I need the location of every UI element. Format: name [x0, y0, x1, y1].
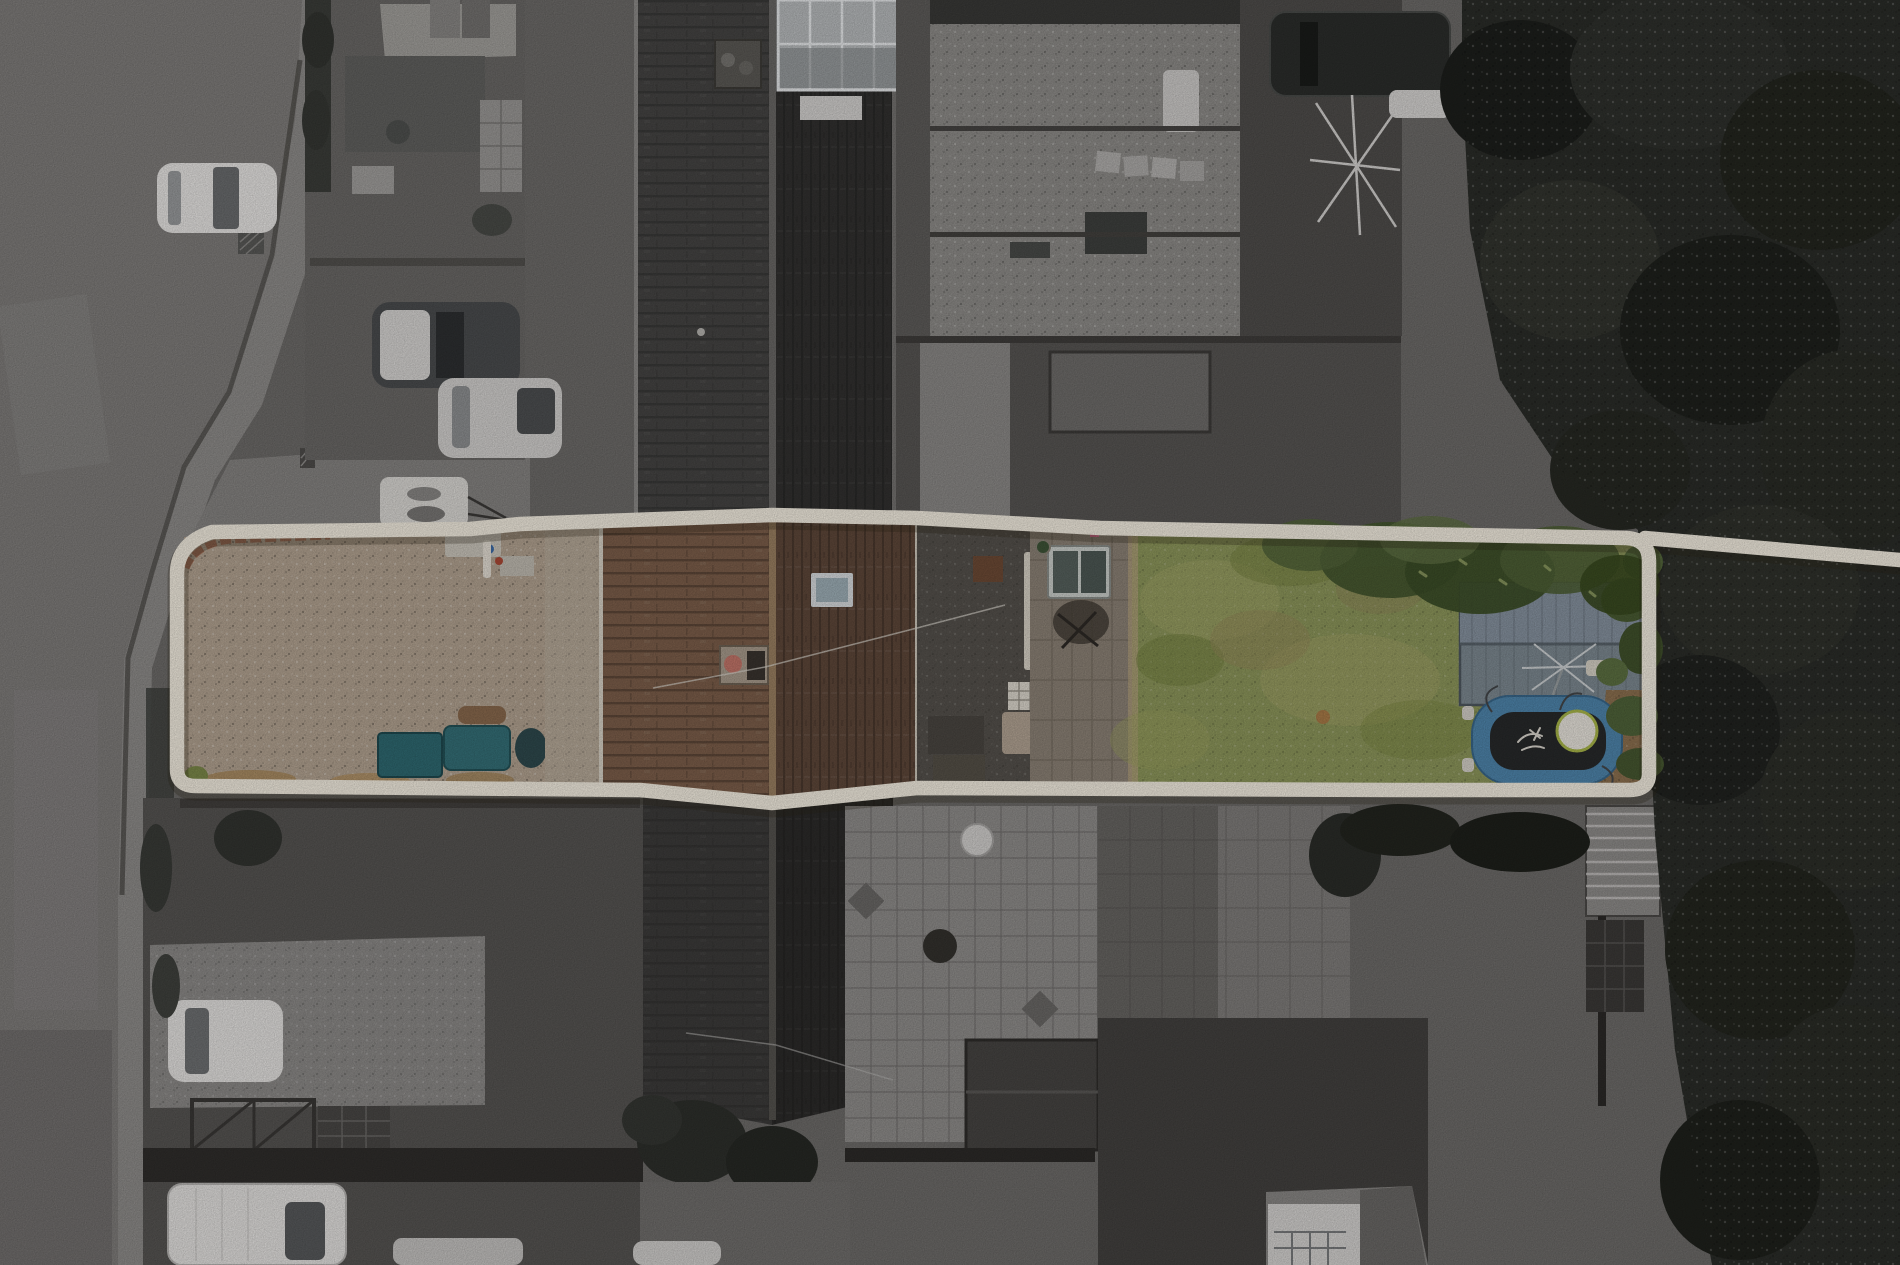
aerial-photo: Aerial drone photo of a terraced house p…: [0, 0, 1900, 1265]
film-grain: [0, 0, 1900, 1265]
photo-grain: [0, 0, 1900, 1265]
photo-layers: [0, 0, 1900, 1265]
aerial-photo-canvas: Aerial drone photo of a terraced house p…: [0, 0, 1900, 1265]
